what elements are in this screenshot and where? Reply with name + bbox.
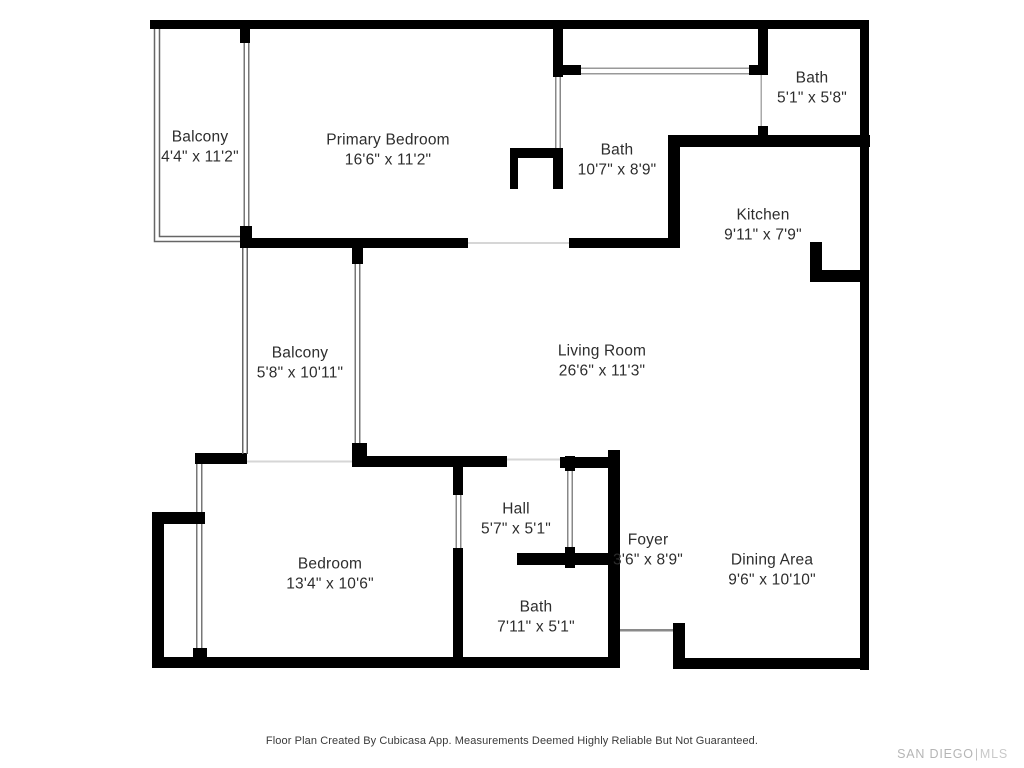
floor-plan-drawing <box>0 0 1024 768</box>
room-name: Dining Area <box>728 551 816 571</box>
footer-disclaimer: Floor Plan Created By Cubicasa App. Meas… <box>0 735 1024 747</box>
room-name: Primary Bedroom <box>326 131 450 151</box>
room-dims: 9'6" x 10'10" <box>728 570 816 590</box>
room-label-living-room: Living Room 26'6" x 11'3" <box>558 342 646 381</box>
room-name: Bedroom <box>286 555 374 575</box>
room-dims: 13'4" x 10'6" <box>286 574 374 594</box>
room-label-bath-primary: Bath 10'7" x 8'9" <box>578 141 657 180</box>
room-label-bath-lower: Bath 7'11" x 5'1" <box>497 598 575 637</box>
room-dims: 16'6" x 11'2" <box>326 150 450 170</box>
room-name: Bath <box>497 598 575 618</box>
room-dims: 5'8" x 10'11" <box>257 363 343 383</box>
room-name: Bath <box>578 141 657 161</box>
mls-logo-secondary: MLS <box>980 747 1008 761</box>
room-label-balcony-top: Balcony 4'4" x 11'2" <box>161 128 239 167</box>
room-name: Balcony <box>161 128 239 148</box>
room-label-dining-area: Dining Area 9'6" x 10'10" <box>728 551 816 590</box>
room-dims: 9'11" x 7'9" <box>724 225 802 245</box>
room-label-bath-top-right: Bath 5'1" x 5'8" <box>777 69 847 108</box>
room-name: Kitchen <box>724 206 802 226</box>
floor-plan: Balcony 4'4" x 11'2" Primary Bedroom 16'… <box>0 0 1024 768</box>
room-label-bedroom: Bedroom 13'4" x 10'6" <box>286 555 374 594</box>
room-name: Bath <box>777 69 847 89</box>
room-dims: 5'1" x 5'8" <box>777 88 847 108</box>
balcony-railing-lines <box>155 29 248 454</box>
mls-logo: SAN DIEGO|MLS <box>897 747 1008 761</box>
room-label-foyer: Foyer 3'6" x 8'9" <box>613 531 683 570</box>
room-dims: 10'7" x 8'9" <box>578 160 657 180</box>
room-dims: 7'11" x 5'1" <box>497 617 575 637</box>
room-dims: 4'4" x 11'2" <box>161 147 239 167</box>
mls-logo-primary: SAN DIEGO <box>897 747 974 761</box>
room-name: Balcony <box>257 344 343 364</box>
room-label-hall: Hall 5'7" x 5'1" <box>481 500 551 539</box>
room-dims: 26'6" x 11'3" <box>558 361 646 381</box>
room-label-balcony-middle: Balcony 5'8" x 10'11" <box>257 344 343 383</box>
room-label-kitchen: Kitchen 9'11" x 7'9" <box>724 206 802 245</box>
room-name: Living Room <box>558 342 646 362</box>
room-name: Hall <box>481 500 551 520</box>
room-dims: 3'6" x 8'9" <box>613 550 683 570</box>
room-dims: 5'7" x 5'1" <box>481 519 551 539</box>
room-name: Foyer <box>613 531 683 551</box>
room-label-primary-bedroom: Primary Bedroom 16'6" x 11'2" <box>326 131 450 170</box>
